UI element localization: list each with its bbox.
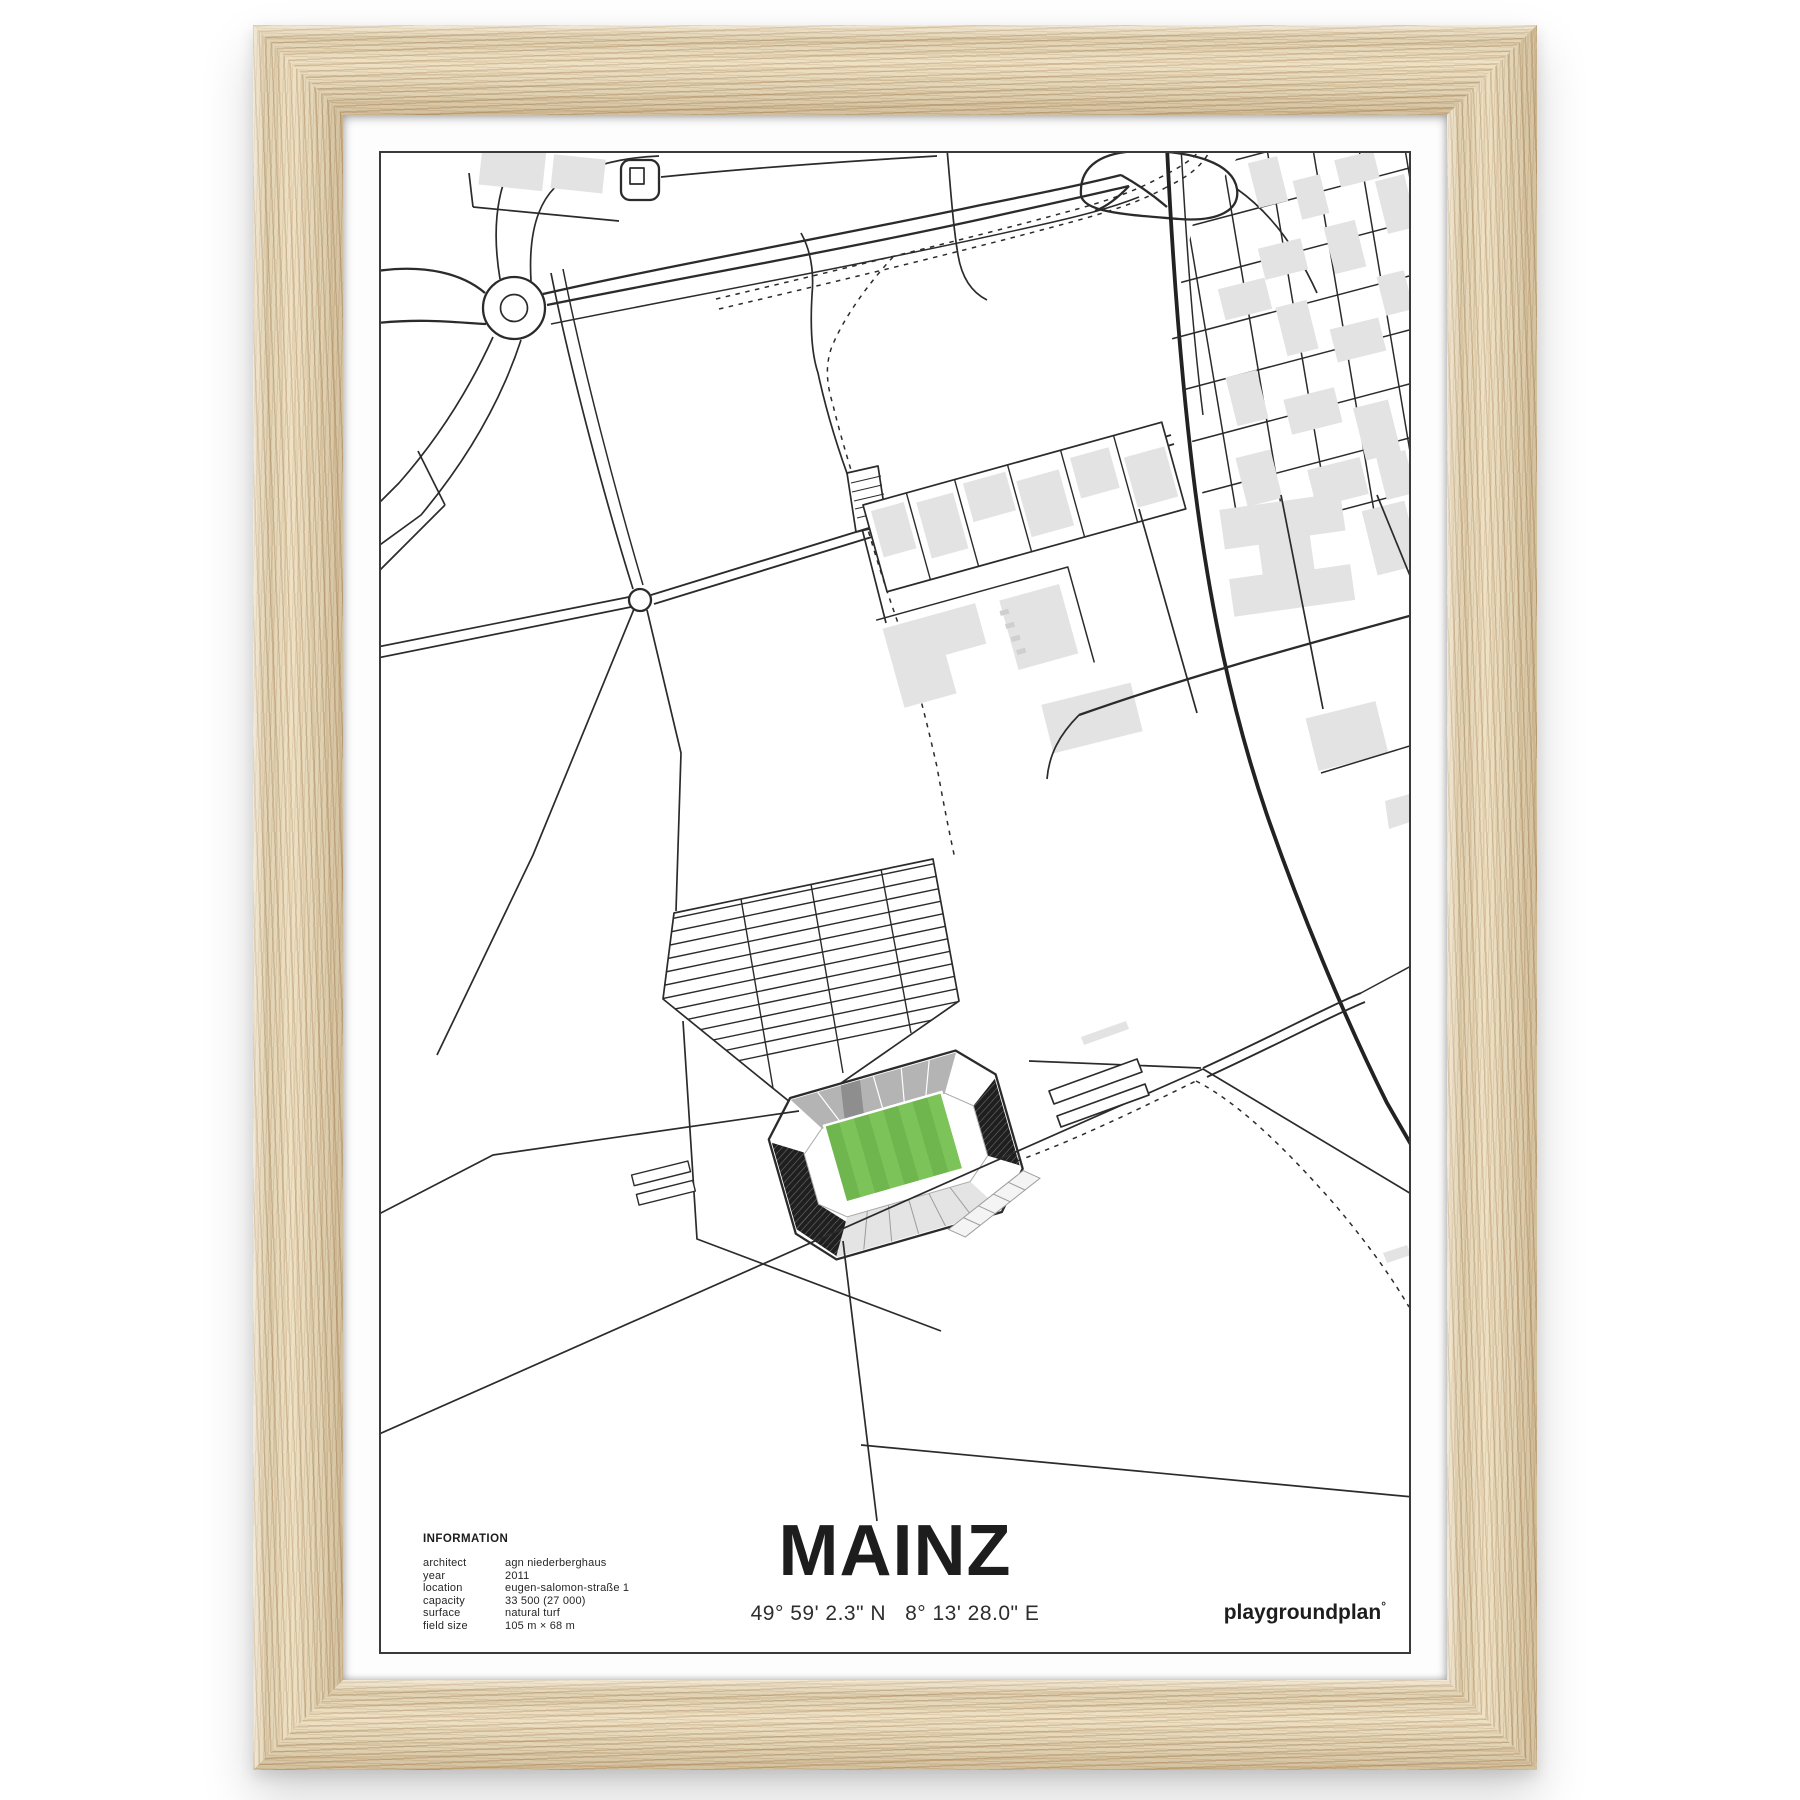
poster: INFORMATION architect agn niederberghaus… [343, 115, 1447, 1680]
wooden-frame: INFORMATION architect agn niederberghaus… [253, 25, 1537, 1770]
industrial-buildings [469, 153, 987, 300]
frame-left-rail [253, 25, 343, 1770]
brand-degree-mark: ° [1381, 1599, 1386, 1613]
grid-buildings [1218, 153, 1409, 507]
frame-bottom-rail [253, 1680, 1537, 1770]
frame-right-rail [1447, 25, 1537, 1770]
map-print: INFORMATION architect agn niederberghaus… [379, 151, 1411, 1654]
commercial-band [863, 422, 1186, 715]
brand-logo: playgroundplan° [1224, 1599, 1386, 1625]
frame-top-rail [253, 25, 1537, 115]
product-photo: INFORMATION architect agn niederberghaus… [0, 0, 1800, 1800]
poster-title: MAINZ [381, 1515, 1409, 1587]
brand-name: playgroundplan [1224, 1601, 1382, 1624]
stadium-map-graphic [381, 153, 1409, 1652]
